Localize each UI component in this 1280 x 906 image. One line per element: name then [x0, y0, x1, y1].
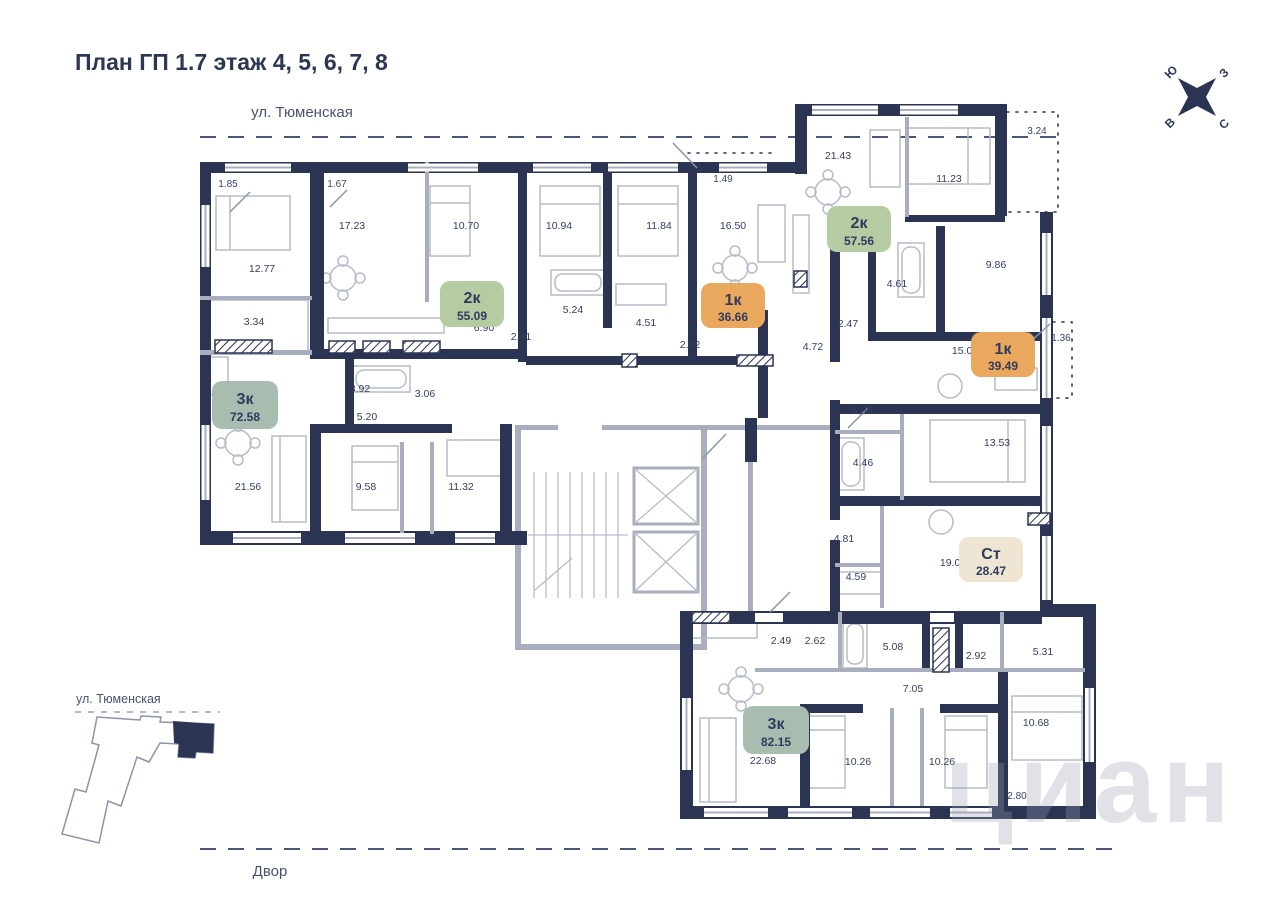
- room-area-label: 4.59: [846, 571, 867, 583]
- compass-north-label: С: [1216, 116, 1232, 132]
- apartment-badge-st-28: Ст 28.47: [959, 537, 1023, 582]
- room-area-label: 2.32: [680, 339, 701, 351]
- apartment-badge-2k-55: 2к 55.09: [440, 281, 504, 327]
- room-area-label: 10.94: [546, 220, 572, 232]
- minimap-highlighted-section: [173, 721, 214, 758]
- compass-east-label: В: [1162, 115, 1178, 131]
- room-area-label: 5.05: [852, 405, 873, 417]
- apartment-type-label: 1к: [995, 341, 1013, 358]
- compass-rose: Ю З В С: [1162, 63, 1233, 132]
- apartment-area-label: 82.15: [761, 735, 791, 749]
- apartment-badge-1k-36: 1к 36.66: [701, 283, 765, 328]
- room-area-label: 9.58: [356, 481, 377, 493]
- room-area-label: 2.92: [966, 650, 987, 662]
- room-area-label: 10.70: [453, 220, 479, 232]
- room-area-label: 21.43: [825, 150, 851, 162]
- compass-south-label: Ю: [1162, 63, 1181, 82]
- elevator-shafts: [634, 468, 698, 592]
- room-area-label: 5.08: [883, 641, 904, 653]
- minimap-street-label: ул. Тюменская: [76, 692, 161, 706]
- dimension-label: 1.49: [713, 174, 733, 185]
- room-area-label: 11.84: [646, 220, 672, 232]
- apartment-area-label: 57.56: [844, 234, 874, 248]
- room-area-label: 4.72: [803, 341, 824, 353]
- room-area-label: 3.06: [415, 388, 436, 400]
- room-area-label: 5.24: [563, 304, 584, 316]
- dimension-label: 1.36: [1051, 333, 1071, 344]
- apartment-type-label: 2к: [851, 215, 869, 232]
- room-area-label: 5.31: [1033, 646, 1054, 658]
- floorplan-page: План ГП 1.7 этаж 4, 5, 6, 7, 8 ул. Тюмен…: [0, 0, 1280, 906]
- apartment-area-label: 36.66: [718, 310, 748, 324]
- room-area-label: 10.26: [845, 756, 871, 768]
- room-area-label: 2.62: [805, 635, 826, 647]
- apartment-type-label: Ст: [981, 546, 1001, 563]
- room-area-label: 21.56: [235, 481, 261, 493]
- room-area-label: 22.68: [750, 755, 776, 767]
- dimension-label: 1.85: [218, 179, 238, 190]
- apartment-type-label: 3к: [237, 391, 255, 408]
- apartment-area-label: 55.09: [457, 309, 487, 323]
- room-area-label: 9.86: [986, 259, 1007, 271]
- room-area-label: 16.50: [720, 220, 746, 232]
- room-area-label: 13.53: [984, 437, 1010, 449]
- apartment-badge-2k-57: 2к 57.56: [827, 206, 891, 252]
- watermark: циан: [944, 721, 1236, 846]
- compass-west-label: З: [1216, 65, 1231, 80]
- dimension-label: 3.24: [1027, 126, 1047, 137]
- room-area-label: 5.20: [357, 411, 378, 423]
- room-area-label: 11.32: [448, 481, 474, 493]
- apartment-type-label: 3к: [768, 716, 786, 733]
- apartment-area-label: 28.47: [976, 564, 1006, 578]
- apartment-type-label: 2к: [464, 290, 482, 307]
- room-area-label: 4.46: [853, 457, 874, 469]
- page-title: План ГП 1.7 этаж 4, 5, 6, 7, 8: [75, 49, 388, 75]
- room-area-label: 7.05: [903, 683, 924, 695]
- apartment-area-label: 72.58: [230, 410, 260, 424]
- floorplan-drawing: План ГП 1.7 этаж 4, 5, 6, 7, 8 ул. Тюмен…: [0, 0, 1280, 906]
- room-area-label: 4.81: [834, 533, 855, 545]
- apartment-badge-3k-82: 3к 82.15: [743, 706, 809, 754]
- room-area-label: 2.47: [838, 318, 859, 330]
- room-area-label: 4.61: [887, 278, 908, 290]
- street-label-bottom: Двор: [253, 863, 288, 880]
- room-area-label: 3.92: [350, 383, 371, 395]
- room-area-label: 3.34: [244, 316, 265, 328]
- room-area-label: 2.49: [771, 635, 792, 647]
- apartment-type-label: 1к: [725, 292, 743, 309]
- room-area-label: 11.23: [936, 173, 962, 185]
- apartment-badge-3k-72: 3к 72.58: [212, 381, 278, 429]
- furniture: [203, 128, 1082, 802]
- room-area-label: 2.41: [511, 331, 532, 343]
- site-minimap: ул. Тюменская: [62, 692, 220, 843]
- apartment-area-label: 39.49: [988, 359, 1018, 373]
- staircase: [528, 472, 628, 598]
- room-area-label: 17.23: [339, 220, 365, 232]
- room-area-label: 4.51: [636, 317, 657, 329]
- street-label-top: ул. Тюменская: [251, 104, 353, 121]
- apartment-badge-1k-39: 1к 39.49: [971, 332, 1035, 377]
- dimension-label: 1.67: [327, 179, 347, 190]
- room-area-label: 12.77: [249, 263, 275, 275]
